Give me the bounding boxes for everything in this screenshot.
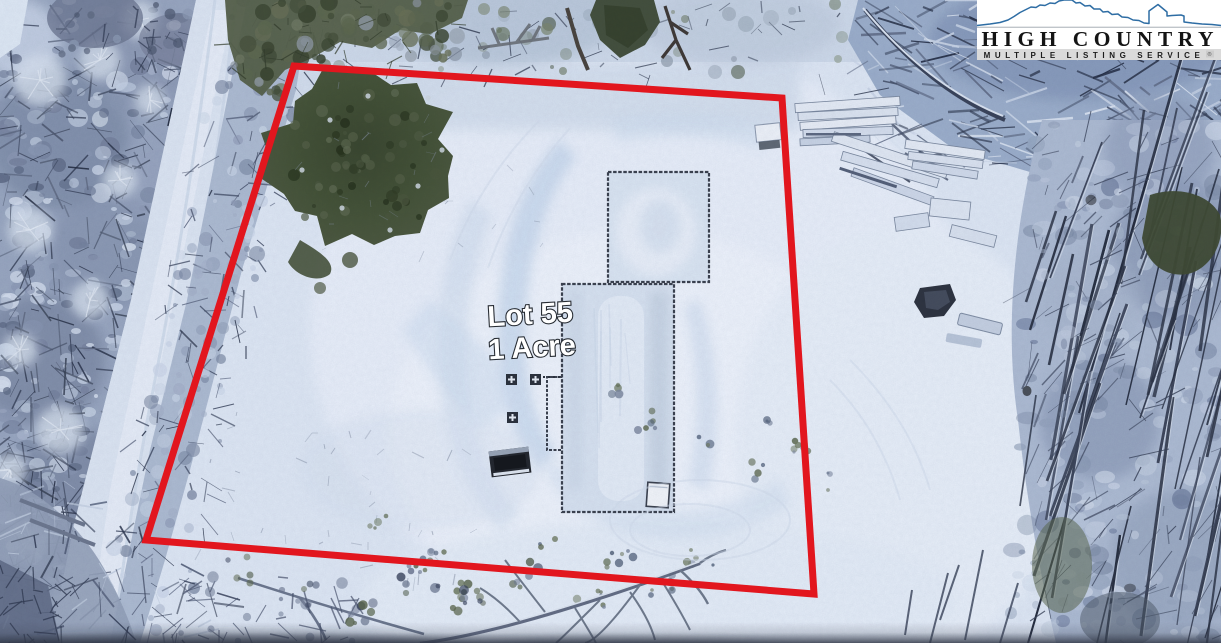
svg-text:1 Acre: 1 Acre [487,329,576,366]
svg-text:Lot 55: Lot 55 [487,297,574,334]
svg-text:®: ® [1208,51,1212,58]
svg-text:MULTIPLE LISTING SERVICE: MULTIPLE LISTING SERVICE [984,51,1205,60]
